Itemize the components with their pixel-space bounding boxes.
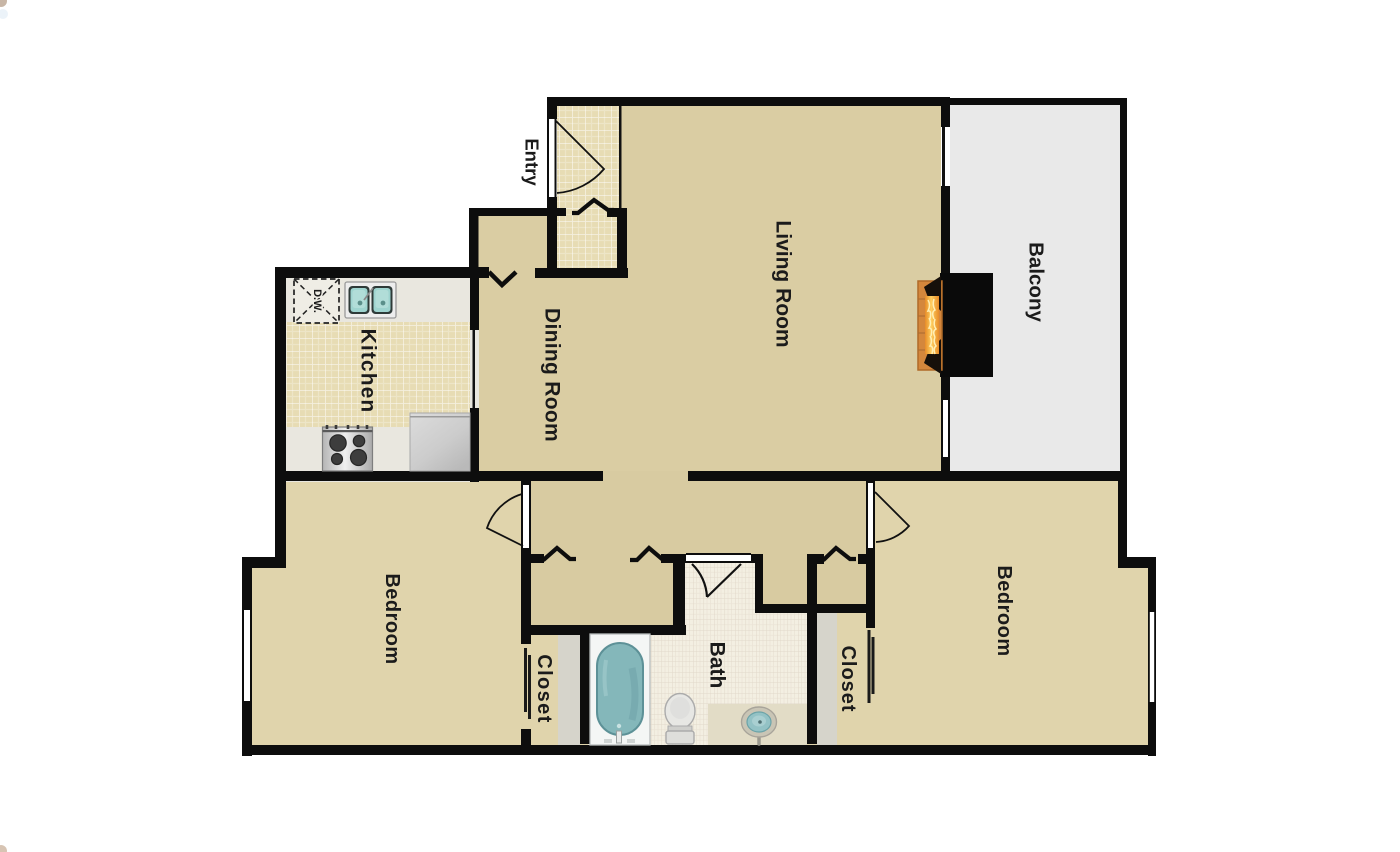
svg-text:Balcony: Balcony (1025, 242, 1048, 322)
svg-text:Bath: Bath (706, 642, 729, 689)
svg-text:D.W.: D.W. (311, 289, 323, 313)
svg-text:Dining Room: Dining Room (541, 308, 564, 442)
svg-text:Entry: Entry (522, 138, 543, 186)
svg-text:Living Room: Living Room (772, 220, 795, 347)
svg-text:Bedroom: Bedroom (993, 565, 1015, 656)
svg-text:Closet: Closet (533, 654, 555, 724)
svg-text:Kitchen: Kitchen (357, 329, 380, 414)
svg-text:Closet: Closet (837, 645, 859, 712)
svg-text:Bedroom: Bedroom (381, 573, 403, 664)
